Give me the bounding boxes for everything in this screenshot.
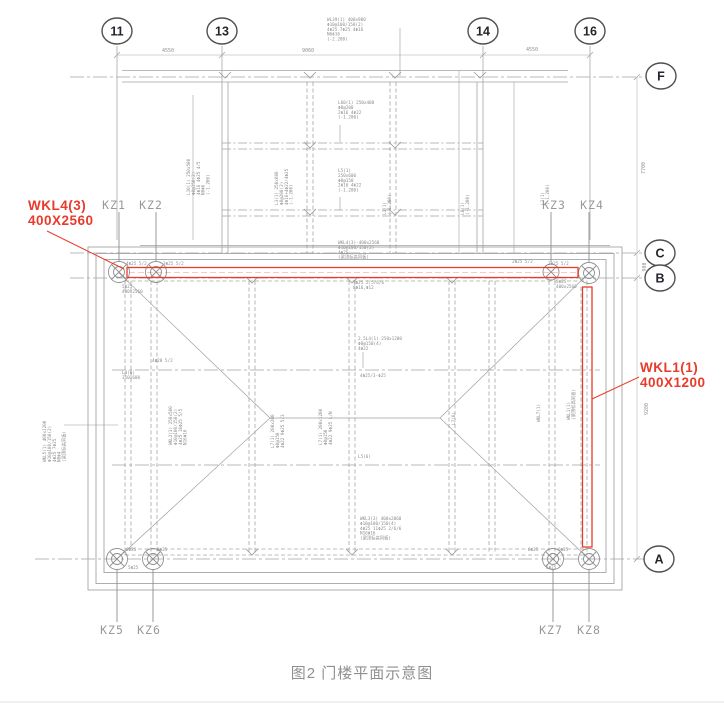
column-kz4 [579, 212, 600, 284]
column-label-KZ1: KZ1 [102, 198, 126, 212]
dimension-label: 9060 [302, 48, 314, 54]
column-label-KZ7: KZ7 [539, 623, 563, 637]
svg-text:14: 14 [476, 24, 490, 38]
svg-text:16: 16 [583, 24, 597, 38]
beam-annotation: L7(1) 200x1200Φ8@1504Φ22 9Φ25 L/N [318, 408, 334, 445]
generated-text: 11131416FCBA45509060455077009009280KZ1KZ… [28, 17, 706, 637]
column-label-KZ5: KZ5 [100, 623, 124, 637]
column-label-KZ6: KZ6 [137, 623, 161, 637]
red-beam-label: WKL4(3)400X2560 [28, 198, 94, 228]
column-label-KZ8: KZ8 [577, 623, 601, 637]
beam-annotation: L60(1) 250x400Φ8@2002Φ16 4Φ22(-1.200) [338, 100, 375, 121]
beam-annotation: 2Φ25 5/2 [548, 261, 569, 267]
svg-text:F: F [657, 69, 665, 83]
beam-annotation: 6Φ25 [558, 547, 569, 553]
column-label-KZ2: KZ2 [139, 198, 163, 212]
beam-annotation: WKL5(1) 400x1200Φ10@100/150(2)4Φ25 7Φ25N… [42, 420, 68, 462]
red-beam-wkl1 [583, 287, 593, 547]
grid-bubble-16: 16 [575, 18, 605, 44]
red-beam-label: WKL1(1)400X1200 [640, 360, 706, 390]
svg-text:13: 13 [215, 24, 229, 38]
dimension-label: 7700 [641, 162, 647, 174]
beam-annotation: 5Φ25 [128, 565, 139, 571]
beam-annotation: L5(6) [358, 454, 371, 460]
beam-annotation: WKL4(3)-400x2560Φ10@100/150(2)4Φ25(梁顶标高同… [338, 240, 380, 261]
beam-annotation: L3(1)(-1.200) [540, 184, 551, 205]
grid-bubble-13: 13 [207, 18, 237, 44]
beam-annotation: L8(1)(-1.200) [460, 194, 471, 215]
figure-caption: 图2 门楼平面示意图 [0, 662, 724, 683]
beam-annotation: 3Φ25 5/2 [163, 261, 184, 267]
grid-bubble-A: A [644, 546, 674, 572]
beam-annotation: L7(0) [451, 412, 457, 425]
dimension-label: 4550 [526, 47, 538, 53]
beam-annotation: WKL7(1) [536, 404, 542, 422]
dimension-label: 900 [642, 262, 648, 271]
beam-annotation: L5(1)250x600Φ8@1502Φ16 4Φ22(-1.200) [338, 168, 362, 194]
beam-annotation: WKL3(3) 400x2060Φ10@100/150(4)4Φ25 11Φ25… [360, 516, 402, 542]
red-leader-wkl4 [47, 231, 124, 269]
hip-lines [117, 273, 589, 559]
grid-bubble-C: C [645, 240, 675, 266]
beam-annotation: 2.5L4(1) 250x1200Φ8@150(4)4Φ22 [358, 336, 402, 352]
beam-annotation: 2Φ25 5/2 [512, 259, 533, 265]
beam-annotation: 4Φ20 5/2 [152, 358, 173, 364]
dimension-label: 4550 [162, 48, 174, 54]
column-kz8 [579, 549, 600, 623]
beam-annotation: L7(1) 200x200Φ8@1504Φ22 9Φ25 5/3 [270, 414, 286, 448]
beam-annotation: L4(6)350x600 [122, 370, 141, 381]
svg-text:C: C [655, 246, 664, 260]
grid-bubble-B: B [645, 265, 675, 291]
svg-text:A: A [654, 552, 663, 566]
beam-annotation: WKL1(1)(梁顶标高同板) [566, 389, 577, 420]
upper-structure [122, 71, 610, 254]
column-kz6 [143, 549, 164, 623]
beam-annotation: 6Φ25 [528, 547, 539, 553]
svg-text:11: 11 [110, 24, 123, 38]
beam-annotation: 6Φ25 [157, 547, 168, 553]
beam-annotation: WKL2(3) 250x500Φ10@100/150(2)4Φ25 10Φ25 … [168, 406, 189, 445]
plan-drawing: 11131416FCBA45509060455077009009280KZ1KZ… [0, 0, 724, 705]
beam-annotation: 7Φ25 2/5/6/68Φ16,Φ12 [353, 280, 384, 291]
column-label-KZ4: KZ4 [580, 198, 604, 212]
beam-annotation: L3(1)(-1.200) [382, 194, 393, 215]
beam-end-marks [219, 72, 486, 555]
red-leader-wkl1 [592, 377, 639, 399]
annotation-leaders [64, 28, 400, 425]
grid-bubble-F: F [646, 63, 676, 89]
grid-bubble-14: 14 [468, 18, 498, 44]
svg-text:B: B [655, 271, 664, 285]
column-kz7 [543, 549, 564, 623]
beam-annotation: 4Φ25 5/2 [126, 261, 147, 267]
grid-bubble-11: 11 [102, 18, 132, 44]
dimension-label: 9280 [644, 403, 650, 415]
figure-page: 11131416FCBA45509060455077009009280KZ1KZ… [0, 0, 724, 705]
column-kz3 [543, 212, 559, 280]
beam-annotation: WL39(1) 400x900Φ10@100/150(2)4Φ25 7Φ25 4… [327, 17, 366, 43]
beam-annotation: L10(1) 250x500Φ8@150(2)4Φ16 4Φ25 4/5N8Φ6… [186, 158, 212, 195]
beam-annotation: 6Φ25 [126, 547, 137, 553]
beam-annotation: 5Φ25 [546, 565, 557, 571]
beam-annotation: L3(1) 250x600Φ8@200(2)4Φ16+4Φ22/4Φ25(-1.… [274, 168, 295, 205]
column-kz5 [107, 549, 128, 623]
beam-annotation: 4Φ25/3-Φ25 [360, 373, 386, 379]
